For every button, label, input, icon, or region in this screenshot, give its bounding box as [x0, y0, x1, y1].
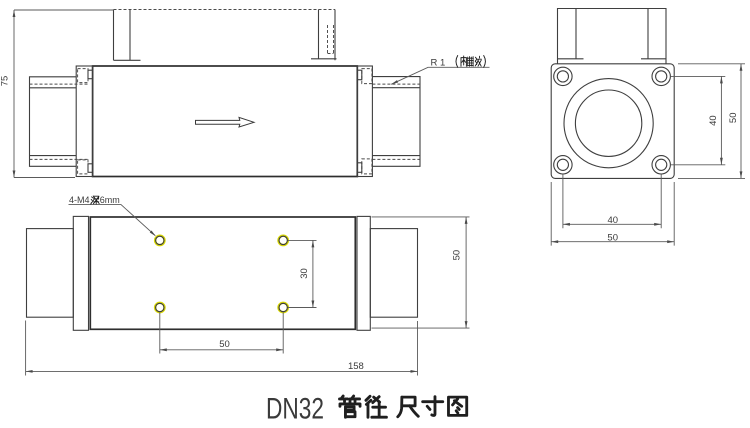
svg-text:4-M4: 4-M4 — [69, 195, 90, 205]
svg-text:50: 50 — [607, 233, 618, 244]
svg-text:6mm: 6mm — [100, 195, 120, 205]
svg-text:40: 40 — [608, 215, 619, 226]
svg-text:DN32: DN32 — [266, 393, 324, 426]
svg-text:158: 158 — [348, 361, 364, 372]
svg-text:R 1: R 1 — [431, 57, 446, 68]
svg-text:50: 50 — [728, 113, 739, 124]
svg-text:40: 40 — [708, 115, 719, 126]
svg-text:50: 50 — [451, 250, 462, 261]
svg-text:30: 30 — [299, 268, 310, 279]
svg-text:75: 75 — [0, 76, 11, 87]
svg-text:50: 50 — [219, 339, 230, 350]
